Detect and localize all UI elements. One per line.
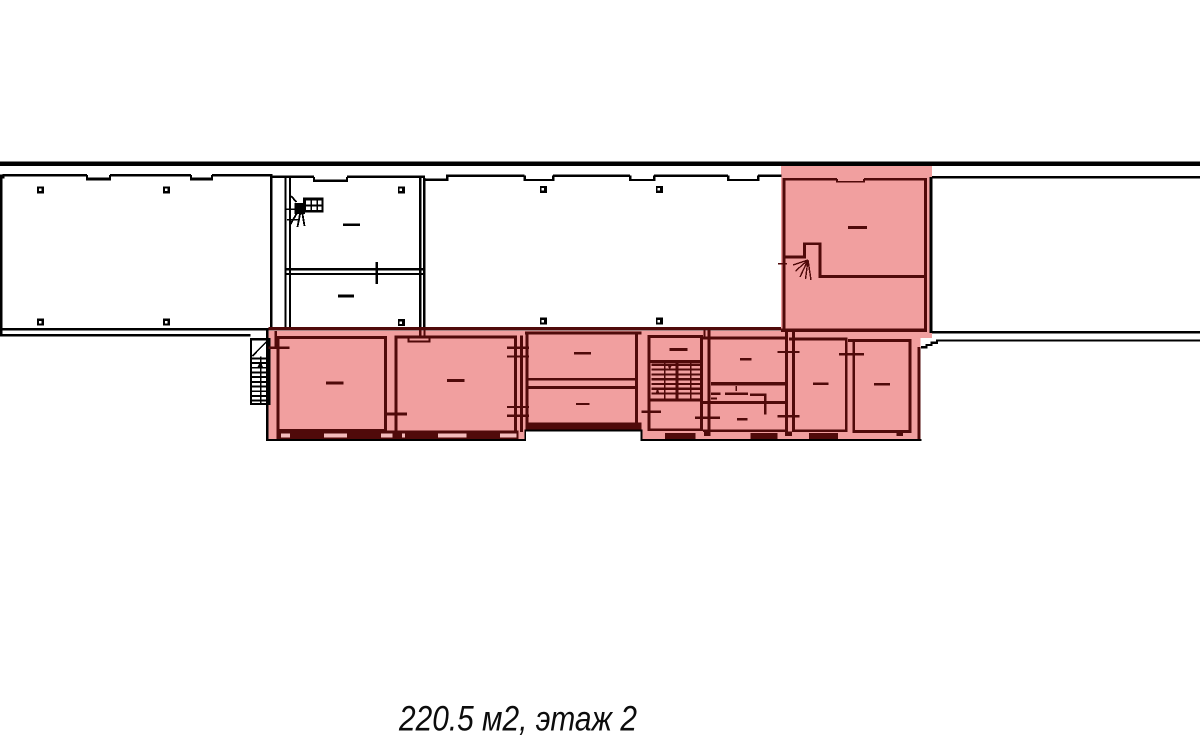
svg-text:220.5 м2, этаж 2: 220.5 м2, этаж 2	[398, 700, 637, 739]
